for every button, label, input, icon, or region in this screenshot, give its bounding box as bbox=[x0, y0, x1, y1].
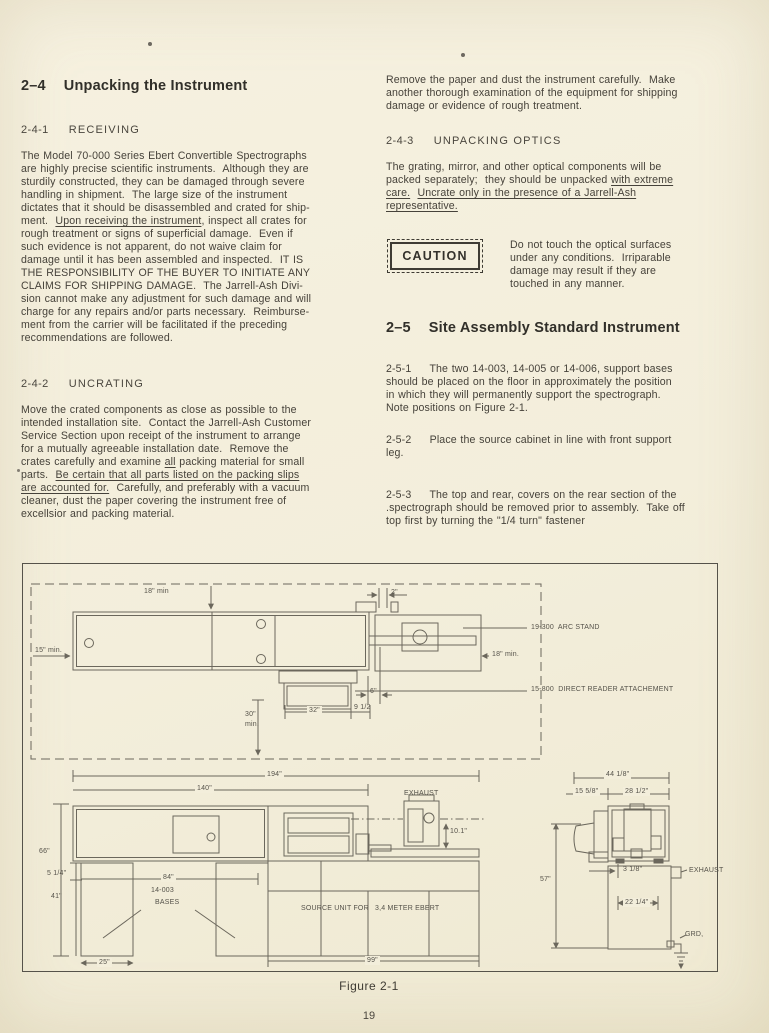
figure-2-1: 18" min2"15" min.18" min.19-300 ARC STAN… bbox=[22, 563, 718, 972]
text-line: parts. Be certain that all parts listed … bbox=[21, 469, 376, 482]
text-line: sion cannot make any adjustment for such… bbox=[21, 293, 376, 306]
dim-3-1-8in: 3 1/8" bbox=[623, 865, 642, 874]
paragraph-2-5-3: 2-5-3 The top and rear, covers on the re… bbox=[386, 489, 744, 528]
text-line: dictates that it should be disassembled … bbox=[21, 202, 376, 215]
dim-9-1-2: 9 1/2 bbox=[354, 703, 371, 712]
text-line: should be placed on the floor in approxi… bbox=[386, 376, 744, 389]
paragraph-uncrating: Move the crated components as close as p… bbox=[21, 404, 376, 521]
dim-44-1-8in: 44 1/8" bbox=[604, 770, 631, 779]
text-line: 2-5-1 The two 14-003, 14-005 or 14-006, … bbox=[386, 363, 744, 376]
dim-2in: 2" bbox=[391, 588, 398, 597]
part-ground: GRD, bbox=[685, 930, 703, 939]
text-line: cleaner, dust the paper covering the ins… bbox=[21, 495, 376, 508]
text-line: representative. bbox=[386, 200, 744, 213]
dim-25in: 25" bbox=[97, 958, 112, 967]
right-column: Remove the paper and dust the instrument… bbox=[386, 74, 744, 528]
manual-page: 2–4Unpacking the Instrument 2-4-1RECEIVI… bbox=[0, 0, 769, 1033]
figure-caption: Figure 2-1 bbox=[22, 979, 716, 993]
dim-10-1in: 10.1" bbox=[450, 827, 467, 836]
text-line: ment. Upon receiving the instrument, ins… bbox=[21, 215, 376, 228]
section-title: Unpacking the Instrument bbox=[64, 78, 248, 94]
dim-99in: 99" bbox=[365, 956, 380, 965]
subsection-heading-receiving: 2-4-1RECEIVING bbox=[21, 124, 376, 136]
section-heading-2-4: 2–4Unpacking the Instrument bbox=[21, 78, 376, 94]
text-line: Move the crated components as close as p… bbox=[21, 404, 376, 417]
text-line: THE RESPONSIBILITY OF THE BUYER TO INITI… bbox=[21, 267, 376, 280]
text-line: rough treatment or signs of superficial … bbox=[21, 228, 376, 241]
text-line: The Model 70-000 Series Ebert Convertibl… bbox=[21, 150, 376, 163]
dim-140in: 140" bbox=[195, 784, 214, 793]
part-14-003: 14-003 bbox=[151, 886, 174, 895]
text-line: The grating, mirror, and other optical c… bbox=[386, 161, 744, 174]
text-line: packed separately; they should be unpack… bbox=[386, 174, 744, 187]
paragraph-receiving: The Model 70-000 Series Ebert Convertibl… bbox=[21, 150, 376, 345]
text-line: leg. bbox=[386, 447, 744, 460]
text-line: another thorough examination of the equi… bbox=[386, 87, 744, 100]
dim-84in: 84" bbox=[161, 873, 176, 882]
section-heading-2-5: 2–5Site Assembly Standard Instrument bbox=[386, 320, 744, 336]
text-line: intended installation site. Contact the … bbox=[21, 417, 376, 430]
text-line: top first by turning the "1/4 turn" fast… bbox=[386, 515, 744, 528]
text-line: Do not touch the optical surfaces bbox=[510, 239, 671, 252]
part-source-unit: SOURCE UNIT FOR bbox=[301, 904, 369, 913]
text-line: 2-5-2 Place the source cabinet in line w… bbox=[386, 434, 744, 447]
text-line: damage until it has been assembled and i… bbox=[21, 254, 376, 267]
dim-30in: 30" bbox=[245, 710, 256, 719]
section-title: Site Assembly Standard Instrument bbox=[429, 320, 680, 336]
text-line: charge for any repairs and/or parts nece… bbox=[21, 306, 376, 319]
subsection-heading-unpacking-optics: 2-4-3UNPACKING OPTICS bbox=[386, 135, 744, 147]
text-line: such evidence is not apparent, do not wa… bbox=[21, 241, 376, 254]
text-line: under any conditions. Irriparable bbox=[510, 252, 671, 265]
figure-drawing bbox=[23, 564, 717, 971]
text-line: Service Section upon receipt of the inst… bbox=[21, 430, 376, 443]
page-number: 19 bbox=[22, 1010, 716, 1022]
part-exhaust-top: EXHAUST bbox=[404, 789, 438, 798]
text-line: damage or evidence of rough treatment. bbox=[386, 100, 744, 113]
dim-28-1-2in: 28 1/2" bbox=[623, 787, 650, 796]
paragraph-2-5-1: 2-5-1 The two 14-003, 14-005 or 14-006, … bbox=[386, 363, 744, 415]
part-exhaust-side: EXHAUST bbox=[689, 866, 723, 875]
scan-speck bbox=[461, 53, 465, 57]
paragraph-uncrating-continued: Remove the paper and dust the instrument… bbox=[386, 74, 744, 113]
text-line: touched in any manner. bbox=[510, 278, 671, 291]
text-line: in which they will permanently support t… bbox=[386, 389, 744, 402]
dim-194in: 194" bbox=[265, 770, 284, 779]
text-line: are accounted for. Carefully, and prefer… bbox=[21, 482, 376, 495]
dim-66in: 66" bbox=[39, 847, 50, 856]
dim-18in-min-top: 18" min bbox=[144, 587, 169, 596]
text-line: crates carefully and examine all packing… bbox=[21, 456, 376, 469]
dim-15in-min: 15" min. bbox=[35, 646, 62, 655]
dim-15-5-8in: 15 5/8" bbox=[573, 787, 600, 796]
text-line: 2-5-3 The top and rear, covers on the re… bbox=[386, 489, 744, 502]
dim-41in: 41" bbox=[51, 892, 62, 901]
text-line: are highly precise scientific instrument… bbox=[21, 163, 376, 176]
text-line: sturdily constructed, they can be damage… bbox=[21, 176, 376, 189]
dim-18in-min-right: 18" min. bbox=[492, 650, 519, 659]
scan-speck bbox=[17, 469, 20, 472]
section-number: 2–5 bbox=[386, 320, 411, 336]
text-line: CLAIMS FOR SHIPPING DAMAGE. The Jarrell-… bbox=[21, 280, 376, 293]
text-line: care. Uncrate only in the presence of a … bbox=[386, 187, 744, 200]
part-bases: BASES bbox=[155, 898, 179, 907]
caution-box: CAUTION bbox=[390, 242, 480, 270]
paragraph-2-5-2: 2-5-2 Place the source cabinet in line w… bbox=[386, 434, 744, 460]
text-line: Remove the paper and dust the instrument… bbox=[386, 74, 744, 87]
left-column: 2–4Unpacking the Instrument 2-4-1RECEIVI… bbox=[21, 78, 376, 521]
dim-6in: 6" bbox=[370, 687, 377, 696]
dim-32in: 32" bbox=[307, 706, 322, 715]
caution-callout: CAUTION Do not touch the optical surface… bbox=[386, 239, 744, 291]
caution-text: Do not touch the optical surfacesunder a… bbox=[510, 239, 671, 291]
text-line: handling in shipment. The large size of … bbox=[21, 189, 376, 202]
scan-speck bbox=[148, 42, 152, 46]
subsection-heading-uncrating: 2-4-2UNCRATING bbox=[21, 378, 376, 390]
part-source-unit-2: 3,4 METER EBERT bbox=[375, 904, 439, 913]
dim-30in-min: min. bbox=[245, 720, 259, 729]
part-direct-reader: 15-800 DIRECT READER ATTACHEMENT bbox=[531, 685, 673, 694]
text-line: excellsior and packing material. bbox=[21, 508, 376, 521]
dim-22-1-4in: 22 1/4" bbox=[623, 898, 650, 907]
dim-57in: 57" bbox=[540, 875, 551, 884]
paragraph-unpacking-optics: The grating, mirror, and other optical c… bbox=[386, 161, 744, 213]
part-arc-stand: 19-300 ARC STAND bbox=[531, 623, 600, 632]
text-line: .spectrograph should be removed prior to… bbox=[386, 502, 744, 515]
text-line: recommendations are followed. bbox=[21, 332, 376, 345]
text-line: Note positions on Figure 2-1. bbox=[386, 402, 744, 415]
text-line: for a mutually agreeable installation da… bbox=[21, 443, 376, 456]
dim-5-1-4in: 5 1/4" bbox=[47, 869, 66, 878]
text-line: damage may result if they are bbox=[510, 265, 671, 278]
text-line: ment from the carrier will be facilitate… bbox=[21, 319, 376, 332]
section-number: 2–4 bbox=[21, 78, 46, 94]
